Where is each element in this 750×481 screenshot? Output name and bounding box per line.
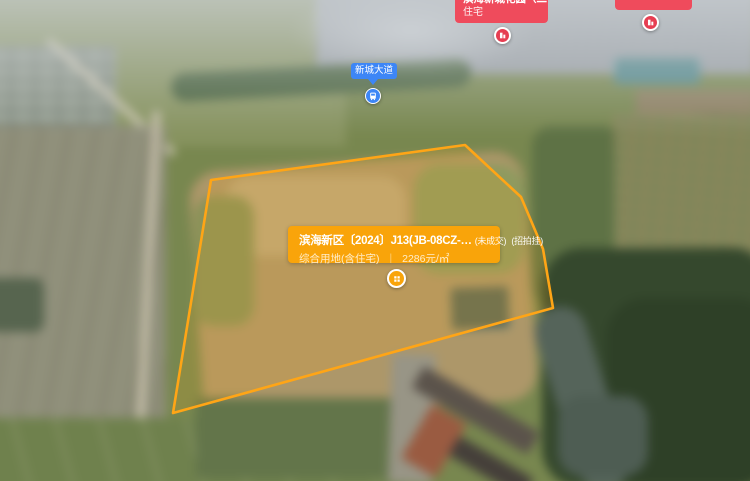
building-windows-icon — [392, 274, 402, 284]
method-badge: (招拍挂) — [511, 236, 543, 246]
bubble-tail — [368, 79, 378, 85]
poi-label-left[interactable]: 滨海新城花园（二手房） 住宅 — [455, 0, 548, 23]
divider: | — [390, 253, 393, 264]
parcel-polygon[interactable] — [173, 145, 553, 413]
poi-pin-left[interactable] — [494, 27, 511, 44]
unit-price-label: 2286元/㎡ — [402, 251, 449, 266]
parcel-title: 滨海新区〔2024〕J13(JB-08CZ-… — [299, 232, 472, 248]
poi-pin-right[interactable] — [642, 14, 659, 31]
road-name-label: 新城大道 — [355, 65, 393, 76]
map-canvas[interactable]: 滨海新城花园（二手房） 住宅 住宅 新城大道 滨 — [0, 0, 750, 481]
building-icon — [646, 18, 655, 27]
land-use-label: 综合用地(含住宅) — [299, 251, 380, 266]
poi-type-label: 住宅 — [463, 6, 540, 20]
bubble-tail — [645, 9, 655, 10]
building-icon — [498, 31, 507, 40]
parcel-pin[interactable] — [387, 269, 406, 288]
bubble-tail — [494, 22, 504, 23]
bus-icon — [368, 91, 378, 101]
poi-label-right[interactable]: 住宅 — [615, 0, 692, 10]
parcel-info-card[interactable]: 滨海新区〔2024〕J13(JB-08CZ-… (未成交) (招拍挂) 综合用地… — [288, 226, 500, 263]
bus-stop-pin[interactable] — [365, 88, 381, 104]
status-badge: (未成交) — [475, 236, 507, 246]
road-name-bubble[interactable]: 新城大道 — [351, 63, 397, 79]
